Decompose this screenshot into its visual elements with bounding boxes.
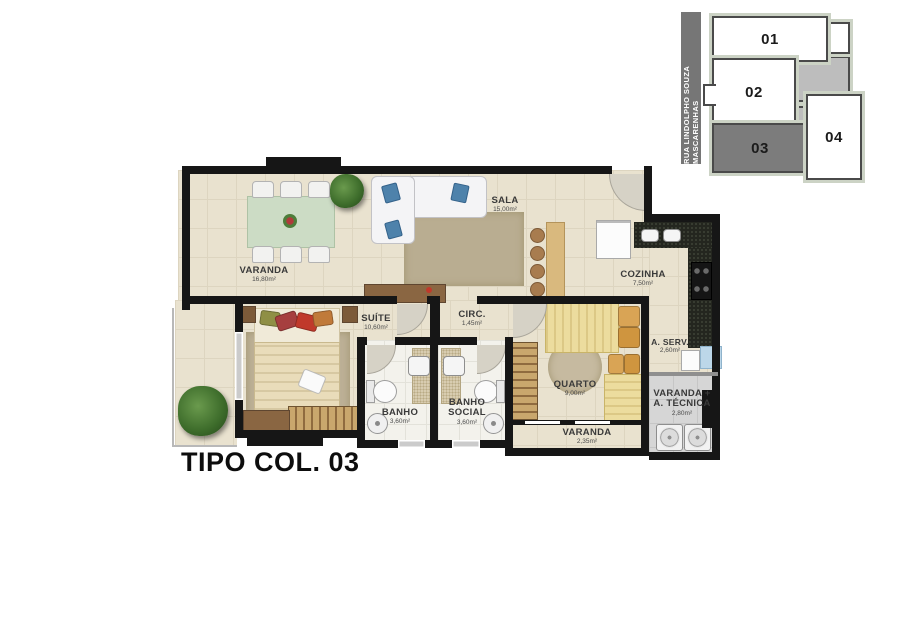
quarto-pillow xyxy=(624,354,640,374)
wall xyxy=(357,440,398,448)
wall xyxy=(649,452,720,460)
wall xyxy=(182,166,612,174)
quarto-sliding-door xyxy=(525,421,560,424)
living-rug xyxy=(404,212,524,286)
wall xyxy=(427,296,440,304)
wall xyxy=(505,296,649,304)
banho-toilet xyxy=(373,380,397,403)
room-area: 2,80m² xyxy=(648,410,716,417)
keyplan-notch xyxy=(703,84,716,106)
dining-chair xyxy=(280,181,302,198)
unit-label: 02 xyxy=(745,84,763,101)
dining-chair xyxy=(280,246,302,263)
bar-stool xyxy=(530,228,545,243)
unit-label: 01 xyxy=(761,31,779,48)
room-name: VARANDA + A. TÉCNICA xyxy=(653,388,710,409)
keyplan-unit-01: 01 xyxy=(712,16,828,62)
wall xyxy=(182,296,397,304)
room-name: BANHO SOCIAL xyxy=(448,397,486,418)
kitchen-sink xyxy=(641,229,659,242)
room-area: 16,80m² xyxy=(240,276,289,283)
service-divider xyxy=(649,372,718,376)
kitchen-sink xyxy=(663,229,681,242)
bar-counter xyxy=(546,222,565,298)
wall xyxy=(505,338,513,455)
dining-chair xyxy=(308,181,330,198)
wall xyxy=(247,438,323,446)
room-label-sala: SALA 15,00m² xyxy=(491,196,518,214)
room-label-varanda-2: VARANDA 2,35m² xyxy=(563,428,612,446)
room-name: SALA xyxy=(491,195,518,206)
banho-social-window xyxy=(452,440,480,448)
suite-window xyxy=(235,332,243,400)
ac-condenser xyxy=(684,424,711,451)
quarto-wardrobe xyxy=(510,342,538,420)
wall-pillar xyxy=(266,157,341,166)
banho-social-toilet xyxy=(496,380,505,403)
wall xyxy=(425,440,452,448)
dining-chair xyxy=(252,181,274,198)
wall xyxy=(644,214,720,222)
ac-condenser xyxy=(656,424,683,451)
quarto-bed-1 xyxy=(545,303,619,353)
suite-pillow xyxy=(312,310,334,328)
table-centerpiece xyxy=(283,214,297,228)
room-area: 1,45m² xyxy=(458,320,485,327)
room-label-varanda-tecnica: VARANDA + A. TÉCNICA 2,80m² xyxy=(648,389,716,417)
street-name-label: RUA LINDOLPHO SOUZA MASCARENHAS xyxy=(682,12,700,164)
bar-stool xyxy=(530,246,545,261)
room-name: CIRC. xyxy=(458,309,485,320)
room-area: 2,60m² xyxy=(651,347,689,354)
room-area: 3,60m² xyxy=(443,419,491,426)
plan-title: TIPO COL. 03 xyxy=(181,447,360,478)
keyplan-unit-04: 04 xyxy=(806,94,862,180)
stove xyxy=(691,262,712,300)
unit-label: 03 xyxy=(751,140,769,157)
dining-chair xyxy=(252,246,274,263)
room-label-quarto: QUARTO 9,00m² xyxy=(554,380,597,398)
wall xyxy=(440,337,477,345)
room-area: 2,35m² xyxy=(563,438,612,445)
room-name: BANHO xyxy=(382,407,418,418)
floor-plan-page: VARANDA 16,80m² SALA 15,00m² COZINHA 7,5… xyxy=(0,0,900,636)
banho-sink xyxy=(408,356,430,376)
nightstand xyxy=(342,306,358,323)
room-name: SUÍTE xyxy=(361,313,390,324)
wall xyxy=(641,296,649,455)
room-label-banho: BANHO 3,60m² xyxy=(382,408,418,426)
room-area: 15,00m² xyxy=(491,206,518,213)
room-label-circ: CIRC. 1,45m² xyxy=(458,310,485,328)
keyplan-unit-03-highlighted: 03 xyxy=(712,123,808,173)
room-name: QUARTO xyxy=(554,379,597,390)
room-label-banho-social: BANHO SOCIAL 3,60m² xyxy=(443,398,491,426)
room-label-varanda: VARANDA 16,80m² xyxy=(240,266,289,284)
room-area: 10,60m² xyxy=(361,324,390,331)
bar-stool xyxy=(530,264,545,279)
suite-dresser xyxy=(243,410,290,432)
wall xyxy=(357,340,365,448)
street-name-bar: RUA LINDOLPHO SOUZA MASCARENHAS xyxy=(681,12,701,164)
quarto-sliding-door xyxy=(575,421,610,424)
room-area: 7,50m² xyxy=(620,280,665,287)
room-label-cozinha: COZINHA 7,50m² xyxy=(620,270,665,288)
wall xyxy=(235,430,363,438)
room-name: VARANDA xyxy=(563,427,612,438)
room-name: COZINHA xyxy=(620,269,665,280)
room-name: A. SERV. xyxy=(651,337,689,347)
unit-label: 04 xyxy=(825,129,843,146)
varanda-railing xyxy=(172,308,174,447)
quarto-pillow xyxy=(608,354,624,374)
dining-chair xyxy=(308,246,330,263)
room-area: 9,00m² xyxy=(554,390,597,397)
keyplan-unit-02: 02 xyxy=(712,58,796,127)
wall xyxy=(505,448,649,456)
wall xyxy=(430,345,438,448)
wall xyxy=(480,440,513,448)
room-label-aserv: A. SERV. 2,60m² xyxy=(651,338,689,354)
quarto-bed-2 xyxy=(604,374,643,424)
bar-stool xyxy=(530,282,545,297)
wall xyxy=(182,166,190,310)
wall xyxy=(477,296,505,304)
wall xyxy=(430,304,440,345)
sideboard-decor xyxy=(426,287,432,293)
banho-window xyxy=(398,440,425,448)
quarto-pillow xyxy=(618,327,640,348)
fridge xyxy=(596,220,631,259)
room-name: VARANDA xyxy=(240,265,289,276)
quarto-pillow xyxy=(618,306,640,327)
room-area: 3,60m² xyxy=(382,418,418,425)
banho-social-sink xyxy=(443,356,465,376)
room-label-suite: SUÍTE 10,60m² xyxy=(361,314,390,332)
wall xyxy=(357,337,367,345)
